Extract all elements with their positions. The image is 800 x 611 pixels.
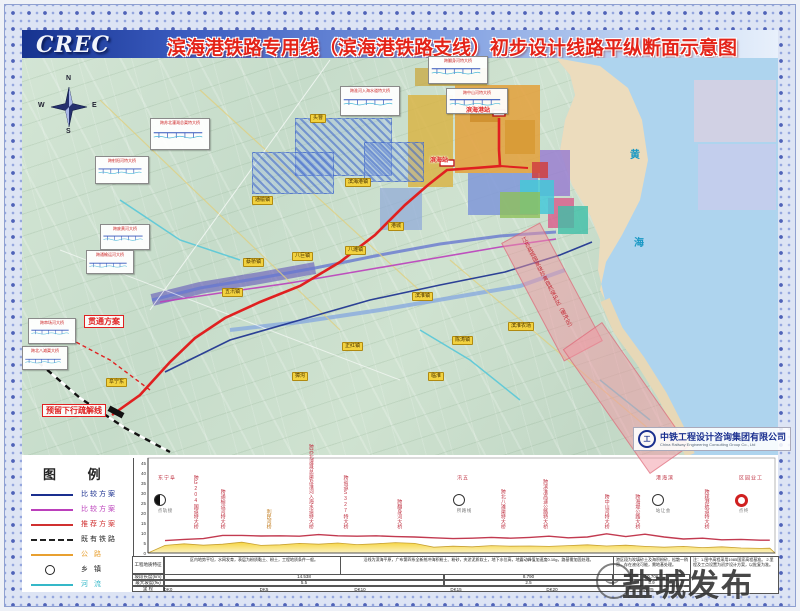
- town-label: 五汛镇: [222, 288, 243, 297]
- legend-label: 比较方案: [81, 504, 117, 514]
- legend-item: 比较方案: [31, 488, 131, 502]
- town-label: 獐沟: [292, 372, 308, 381]
- legend-swatch-solid: [31, 524, 73, 526]
- legend-label: 推荐方案: [81, 519, 117, 529]
- profile-y-tick: 25: [134, 501, 146, 506]
- legend-item: 推荐方案: [31, 518, 131, 532]
- town-label: 滨淮镇: [412, 292, 433, 301]
- town-label: 头罾: [310, 114, 326, 123]
- profile-y-tick: 40: [134, 471, 146, 476]
- profile-y-tick: 20: [134, 511, 146, 516]
- geology-cell: 沿线为滨海平原，广布第四系全新统冲海积粉土、粉砂，夹淤泥质软土，地下水位高，地震…: [340, 556, 617, 576]
- crec-logo: CREC: [36, 32, 110, 58]
- table-row-label: 工程地质特征: [132, 556, 164, 574]
- flood-detention-hatch: [364, 142, 424, 182]
- legend-label: 乡 镇: [81, 564, 103, 574]
- map-station-label: 滨海港站: [466, 105, 490, 114]
- compass-w: W: [38, 102, 45, 109]
- profile-annotation: 跨省道S327特大桥: [342, 475, 348, 529]
- legend-item: 河 流: [31, 578, 131, 592]
- design-company-credit: 工 中铁工程设计咨询集团有限公司 China Railway Engineeri…: [633, 427, 791, 451]
- bridge-callout: 跨苏北灌溉总渠特大桥: [150, 118, 210, 150]
- bridge-callout: 跨串场河大桥: [28, 318, 76, 344]
- station-circle-icon: [735, 494, 748, 507]
- legend-item: 公 路: [31, 548, 131, 562]
- profile-annotation: 跨疏港航道特大桥: [703, 489, 709, 529]
- town-label: 滨海港镇: [345, 178, 371, 187]
- profile-y-tick: 0: [134, 551, 146, 556]
- table-row-label: 里 程: [132, 586, 164, 592]
- town-label: 八巨镇: [292, 252, 313, 261]
- bridge-callout: 跨淮河入海水道特大桥: [340, 86, 400, 116]
- geology-cell: 区内地势平坦，水网发育，表层为粉质黏土、粉土，工程地质条件一般。: [164, 556, 344, 576]
- town-label: 通榆镇: [252, 196, 273, 205]
- profile-y-tick: 30: [134, 491, 146, 496]
- station-name: 五汛: [456, 475, 468, 480]
- profile-y-tick: 15: [134, 521, 146, 526]
- compass-rose: N W E S: [46, 84, 92, 130]
- station-circle-icon: [154, 494, 166, 506]
- drawing-sheet: CREC 滨海港铁路专用线（滨海港铁路支线）初步设计线路平纵断面示意图: [0, 0, 800, 611]
- watermark: 盐城发布: [622, 560, 754, 605]
- profile-y-tick: 35: [134, 481, 146, 486]
- sea-label: 黄: [630, 146, 640, 161]
- town-label: 陈涛镇: [452, 336, 473, 345]
- legend-title: 图 例: [43, 464, 115, 483]
- station-name: 滨海港: [655, 475, 673, 480]
- legend-swatch-solid: [31, 494, 73, 496]
- mileage-label: DK10: [354, 587, 365, 592]
- profile-annotation: 跨苏北灌溉总渠及淮河入海水道特大桥: [308, 444, 314, 529]
- profile-y-tick: 5: [134, 541, 146, 546]
- legend-swatch-dashed: [31, 539, 73, 541]
- map-station-label: 滨海站: [430, 155, 448, 164]
- station-circle-icon: [453, 494, 465, 506]
- flood-detention-hatch: [252, 152, 334, 194]
- profile-annotation: 跨海堤公路大桥: [634, 494, 640, 529]
- legend-swatch-solid: [31, 584, 73, 586]
- legend-item: 比较方案: [31, 503, 131, 517]
- station-subtitle: 终点: [739, 508, 749, 513]
- profile-annotation: 跨翻身河大桥: [396, 499, 402, 529]
- legend-item: 既有铁路: [31, 533, 131, 547]
- bridge-callout-title: 跨通榆运河大桥: [88, 252, 132, 257]
- company-logo-icon: 工: [638, 430, 656, 448]
- mileage-label: DK20: [546, 587, 557, 592]
- profile-y-tick: 10: [134, 531, 146, 536]
- legend-label: 公 路: [81, 549, 103, 559]
- mileage-label: DK0: [164, 587, 173, 592]
- company-name-en: China Railway Engineering Consulting Gro…: [660, 442, 786, 447]
- town-label: 阜宁东: [106, 378, 127, 387]
- profile-annotation: 利民河桥: [266, 509, 272, 529]
- legend-swatch-circle: [45, 565, 55, 575]
- sea-label: 海: [634, 234, 644, 249]
- compass-e: E: [92, 102, 97, 109]
- legend-swatch-solid: [31, 554, 73, 556]
- station-circle-icon: [652, 494, 664, 506]
- legend-label: 河 流: [81, 579, 103, 589]
- town-label: 港城: [388, 222, 404, 231]
- town-label: 滨淮农场: [508, 322, 534, 331]
- station-name: 工业园区: [738, 475, 762, 480]
- legend-label: 既有铁路: [81, 534, 117, 544]
- compass-n: N: [66, 75, 71, 82]
- mileage-label: DK15: [450, 587, 461, 592]
- legend-label: 比较方案: [81, 489, 117, 499]
- profile-annotation: 跨滨淮高速公路特大桥: [542, 479, 548, 529]
- station-subtitle: 接轨点: [158, 508, 173, 513]
- town-label: 八滩镇: [345, 246, 366, 255]
- mileage-label: DK5: [260, 587, 269, 592]
- scheme-label: 预留下行疏解线: [42, 404, 106, 417]
- station-name: 阜宁东: [157, 475, 175, 480]
- town-label: 蔡桥镇: [243, 258, 264, 267]
- scheme-label: 贯通方案: [84, 315, 124, 328]
- company-name: 中铁工程设计咨询集团有限公司: [660, 432, 786, 442]
- bridge-callout: 跨废黄河大桥: [100, 224, 150, 250]
- profile-annotation: 跨通榆运河特大桥: [220, 489, 226, 529]
- profile-annotation: 跨G204国道特大桥: [193, 475, 199, 529]
- bridge-callout: 跨翻身河特大桥: [428, 56, 488, 84]
- profile-annotation: 跨中山河特大桥: [604, 494, 610, 529]
- bridge-callout-title: 跨北八滩渠大桥: [24, 348, 66, 353]
- map-geometry: [22, 58, 778, 455]
- bridge-callout: 跨射阳河特大桥: [95, 156, 149, 184]
- station-subtitle: 线路所: [457, 508, 472, 513]
- profile-y-tick: 45: [134, 461, 146, 466]
- legend-item: 乡 镇: [31, 563, 131, 577]
- plan-map: [22, 58, 778, 455]
- bridge-callout: 跨通榆运河大桥: [86, 250, 134, 274]
- town-label: 临淮: [428, 372, 444, 381]
- title-bar: CREC 滨海港铁路专用线（滨海港铁路支线）初步设计线路平纵断面示意图: [22, 30, 778, 58]
- bridge-callout: 跨北八滩渠大桥: [22, 346, 68, 370]
- legend-swatch-solid: [31, 509, 73, 511]
- station-subtitle: 会让站: [656, 508, 671, 513]
- profile-annotation: 跨北八滩渠特大桥: [500, 489, 506, 529]
- compass-s: S: [66, 128, 71, 135]
- town-label: 正红镇: [342, 342, 363, 351]
- legend: 图 例 比较方案比较方案推荐方案既有铁路公 路乡 镇河 流: [25, 458, 134, 592]
